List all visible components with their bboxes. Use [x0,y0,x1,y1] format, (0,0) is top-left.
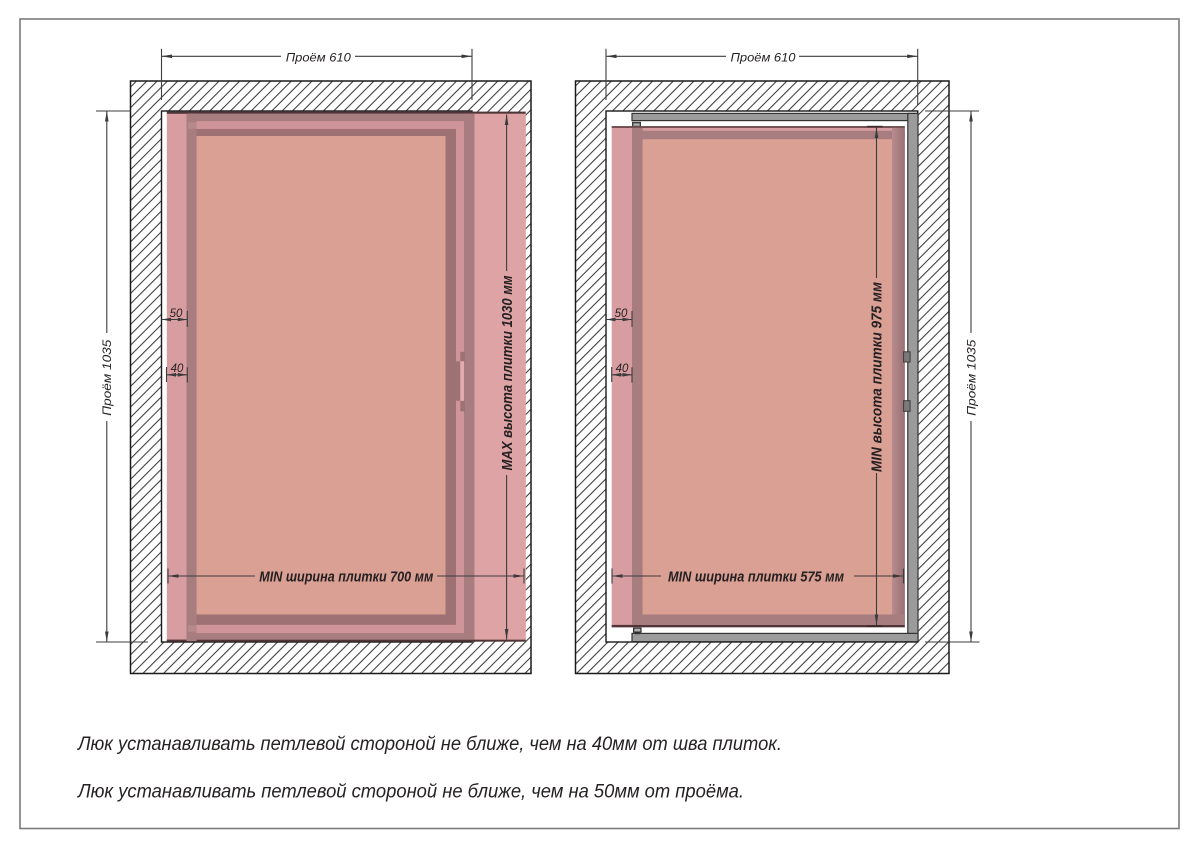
svg-text:Проём 610: Проём 610 [286,50,351,64]
svg-text:MIN ширина плитки 575 мм: MIN ширина плитки 575 мм [668,569,844,586]
svg-text:Люк устанавливать петлевой сто: Люк устанавливать петлевой стороной не б… [76,781,744,802]
svg-text:MIN ширина плитки 700 мм: MIN ширина плитки 700 мм [259,569,433,586]
svg-text:Проём 1035: Проём 1035 [100,339,114,415]
svg-text:MAX высота плитки 1030 мм: MAX высота плитки 1030 мм [499,276,516,471]
svg-text:40: 40 [171,363,184,375]
svg-text:Проём 1035: Проём 1035 [964,339,978,415]
svg-text:50: 50 [615,308,628,320]
svg-text:Проём 610: Проём 610 [731,50,796,64]
svg-text:50: 50 [170,308,183,320]
svg-text:Люк устанавливать петлевой сто: Люк устанавливать петлевой стороной не б… [76,734,782,755]
svg-text:MIN высота плитки 975 мм: MIN высота плитки 975 мм [868,282,885,472]
svg-text:40: 40 [616,363,629,375]
